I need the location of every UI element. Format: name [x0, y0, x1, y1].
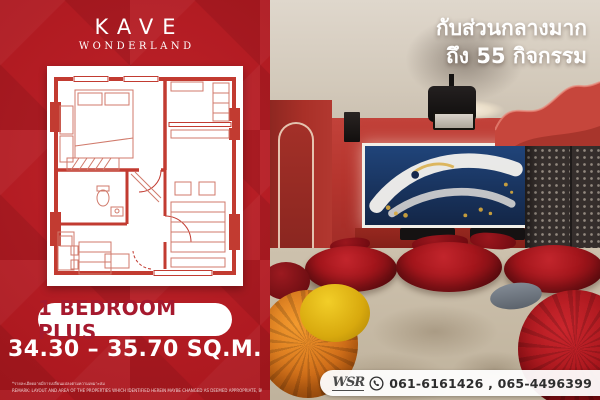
- red-wave-canopy: [495, 74, 600, 146]
- ad-banner: KAVE WONDERLAND: [0, 0, 600, 400]
- ceiling-projector: [428, 86, 476, 122]
- headline-thai: กับส่วนกลางมาก ถึง 55 กิจกรรม: [436, 15, 587, 70]
- koi-artwork: [365, 146, 529, 225]
- disclaimer-thai: *รายละเอียดอาจมีการเปลี่ยนแปลงตามความเหม…: [12, 381, 262, 388]
- phone-numbers: 061-6161426 , 065-4496399: [389, 376, 592, 391]
- headline-line1: กับส่วนกลางมาก: [436, 15, 587, 43]
- brand-subtitle: WONDERLAND: [0, 41, 270, 52]
- left-panel: KAVE WONDERLAND: [0, 0, 270, 400]
- beanbag-yellow: [300, 284, 370, 342]
- brand-logo: KAVE WONDERLAND: [0, 15, 270, 52]
- red-velvet-pouf: [396, 242, 502, 292]
- wsr-logo: WSR: [332, 376, 364, 391]
- area-range: 34.30 – 35.70 SQ.M.: [0, 337, 270, 362]
- floor-plan: [47, 66, 243, 286]
- headline-line2: ถึง 55 กิจกรรม: [436, 43, 587, 71]
- red-velvet-pouf: [305, 246, 397, 292]
- phone-icon: [369, 376, 384, 391]
- showroom-photo: กับส่วนกลางมาก ถึง 55 กิจกรรม WSR 061-61…: [270, 0, 600, 400]
- wall-speaker-left: [344, 112, 360, 142]
- contact-strip: WSR 061-6161426 , 065-4496399: [320, 370, 600, 396]
- disclaimer-english: REMARK: LAYOUT AND AREA OF THE PROPERTIE…: [12, 388, 262, 395]
- brand-name: KAVE: [0, 15, 270, 39]
- disclaimer: *รายละเอียดอาจมีการเปลี่ยนแปลงตามความเหม…: [12, 381, 262, 395]
- unit-type-badge: 1 BEDROOM PLUS: [38, 303, 232, 336]
- cinema-screen: [362, 143, 532, 228]
- floor-plan-drawing: [47, 66, 243, 286]
